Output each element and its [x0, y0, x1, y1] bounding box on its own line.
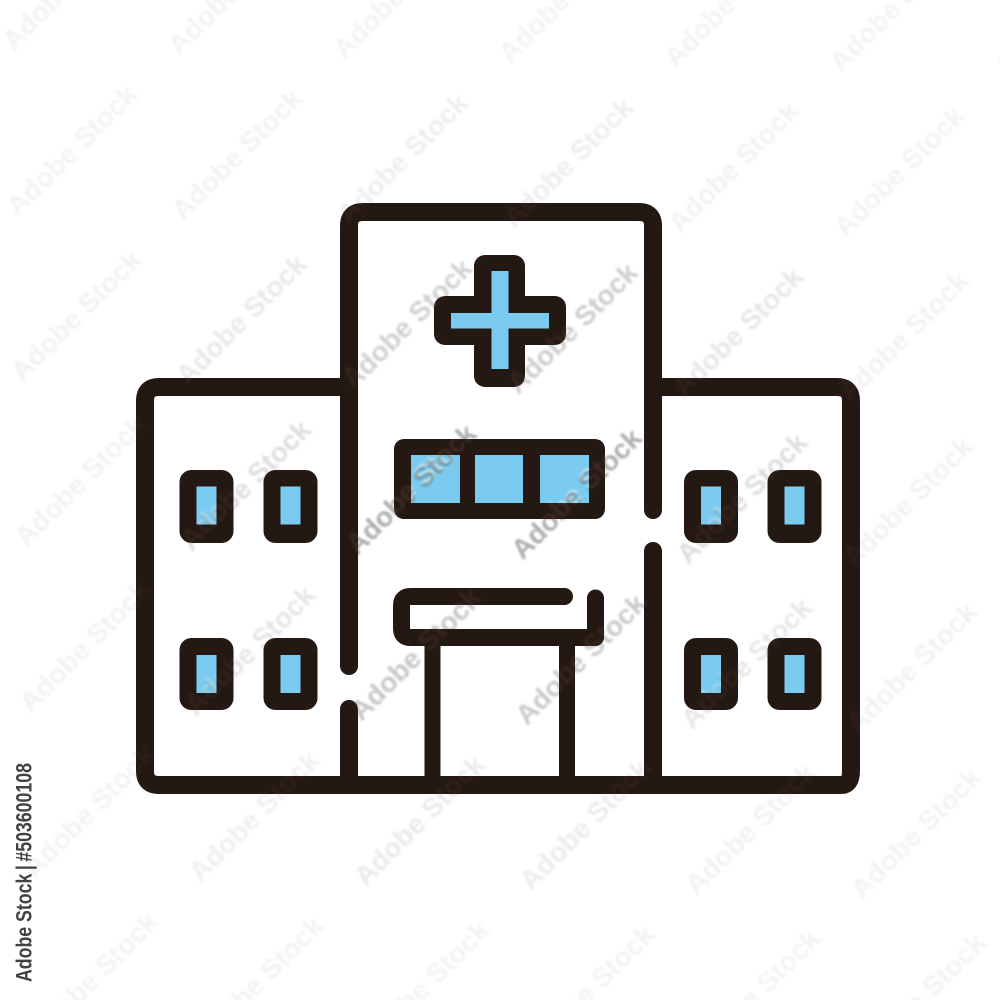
svg-text:Adobe Stock | #503600108: Adobe Stock | #503600108 — [13, 763, 37, 982]
